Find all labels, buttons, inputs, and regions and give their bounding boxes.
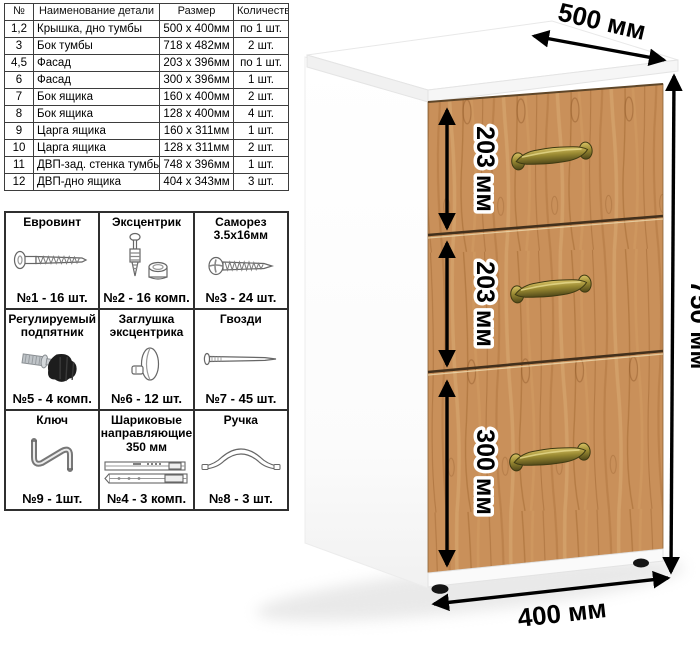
dim-label-right-height: 750 мм [685, 280, 700, 369]
cabinet-foot [633, 559, 649, 568]
dim-label-drawer-3: 300 мм [471, 429, 499, 515]
dim-arrow-right-height [671, 76, 674, 572]
dim-label-drawer-2: 203 мм [471, 261, 499, 347]
dim-label-drawer-1: 203 мм [471, 126, 499, 212]
cabinet-illustration: 500 мм 750 мм 400 мм 203 мм 203 мм 300 м… [0, 0, 700, 648]
cabinet-side-panel [305, 57, 428, 588]
cabinet-foot [432, 584, 449, 594]
assembly-instruction-sheet: { "parts_table": { "headers": ["№", "Наи… [0, 0, 700, 648]
